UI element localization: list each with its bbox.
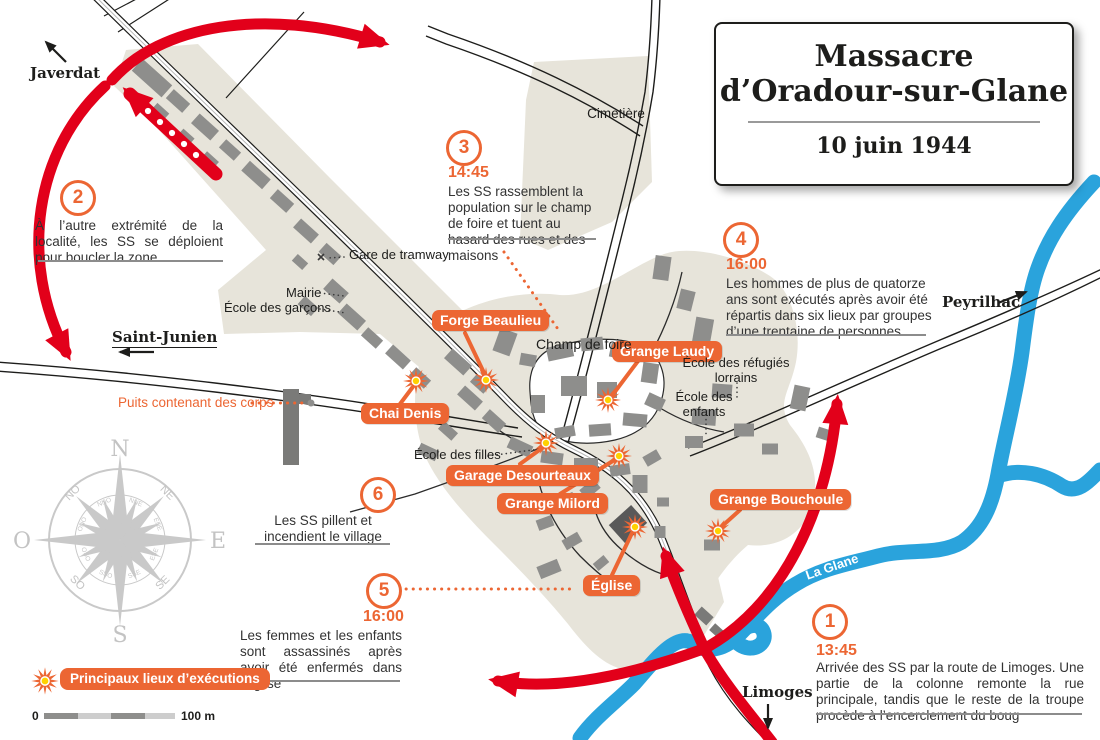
scale-bar xyxy=(44,713,175,719)
execution-burst-icon xyxy=(715,528,721,534)
building xyxy=(561,376,587,396)
label-saint-junien: Saint-Junien xyxy=(112,328,217,348)
compass-nne: NNE xyxy=(128,497,144,509)
compass-s: S xyxy=(112,623,127,648)
annotation-4-rule xyxy=(726,334,926,336)
compass-rose: N S E O NE NO SE SO NNE NNO ENE ONO ESE … xyxy=(13,437,226,648)
execution-burst-icon xyxy=(605,397,611,403)
annotation-6-text: Les SS pillent et incendient le village xyxy=(248,513,398,545)
site-eglise: Église xyxy=(583,575,640,596)
execution-burst-icon xyxy=(483,377,489,383)
annotation-1-number: 1 xyxy=(812,604,848,640)
building xyxy=(283,389,299,465)
building xyxy=(734,424,754,437)
annotation-3-rule xyxy=(448,238,596,240)
annotation-5-number: 5 xyxy=(366,573,402,609)
annotation-1-rule xyxy=(816,713,1082,715)
annotation-6-rule xyxy=(255,543,390,545)
annotation-2-number: 2 xyxy=(60,180,96,216)
label-ecole-des-enfants: École des enfants xyxy=(664,390,744,419)
annotation-4-number: 4 xyxy=(723,222,759,258)
annotation-6-number: 6 xyxy=(360,477,396,513)
compass-n: N xyxy=(110,437,129,462)
label-javerdat: Javerdat xyxy=(30,64,100,82)
building xyxy=(652,255,671,281)
building xyxy=(657,498,669,507)
label-cimetiere: Cimetière xyxy=(576,106,656,121)
annotation-3-time: 14:45 xyxy=(448,164,489,182)
site-garage-desourteaux: Garage Desourteaux xyxy=(446,465,599,486)
site-grange-milord: Grange Milord xyxy=(497,493,608,514)
execution-burst-icon xyxy=(616,453,622,459)
execution-burst-icon xyxy=(31,667,58,694)
scale-hundred: 100 m xyxy=(181,709,215,723)
river-tributary xyxy=(998,470,1100,489)
execution-burst-icon xyxy=(42,678,49,685)
label-champ-de-foire: Champ de foire xyxy=(536,337,632,353)
legend-burst-holder xyxy=(30,664,62,698)
compass-e: E xyxy=(210,529,226,554)
puits-dot xyxy=(308,400,315,407)
title-date: 10 juin 1944 xyxy=(716,133,1072,159)
building xyxy=(633,475,648,493)
building xyxy=(622,412,647,427)
label-ecole-refugies-lorrains: École des réfugiés lorrains xyxy=(680,356,792,385)
annotation-3-text: Les SS rassemblent la population sur le … xyxy=(448,184,600,264)
annotation-1-time: 13:45 xyxy=(816,642,857,660)
label-limoges: Limoges xyxy=(742,683,813,701)
legend-executions: Principaux lieux d’exécutions xyxy=(60,668,270,690)
label-peyrilhac: Peyrilhac xyxy=(942,293,1020,311)
building xyxy=(790,385,811,412)
scale-zero: 0 xyxy=(32,709,39,723)
title-box: Massacre d’Oradour-sur-Glane 10 juin 194… xyxy=(714,22,1074,186)
annotation-2-rule xyxy=(38,260,223,262)
building xyxy=(762,444,778,455)
site-grange-bouchoule: Grange Bouchoule xyxy=(710,489,851,510)
annotation-3-number: 3 xyxy=(446,130,482,166)
annotation-4-time: 16:00 xyxy=(726,256,767,274)
building xyxy=(589,423,612,437)
compass-o: O xyxy=(13,529,31,554)
compass-sse: SSE xyxy=(127,569,142,581)
building xyxy=(685,436,703,448)
title-line2: d’Oradour-sur-Glane xyxy=(716,75,1072,110)
compass-ese: ESE xyxy=(149,546,161,561)
label-puits: Puits contenant des corps xyxy=(118,395,273,410)
label-ecole-des-filles: École des filles xyxy=(414,448,501,463)
label-gare-de-tramway: Gare de tramway xyxy=(349,248,449,263)
compass-nno: NNO xyxy=(96,497,112,509)
execution-burst-icon xyxy=(632,524,638,530)
building xyxy=(641,362,660,384)
compass-ono: ONO xyxy=(77,516,89,532)
javerdat-arrow xyxy=(46,42,66,62)
label-mairie: Mairie xyxy=(286,286,321,301)
label-ecole-des-garcons: École des garçons xyxy=(224,301,331,316)
title-divider xyxy=(748,121,1040,123)
map-canvas: N S E O NE NO SE SO NNE NNO ENE ONO ESE … xyxy=(0,0,1100,740)
site-chai-denis: Chai Denis xyxy=(361,403,449,424)
compass-sso: SSO xyxy=(98,569,113,581)
annotation-5-time: 16:00 xyxy=(363,608,404,626)
building xyxy=(655,526,666,538)
execution-burst-icon xyxy=(413,378,419,384)
building xyxy=(531,395,545,413)
compass-oso: OSO xyxy=(79,546,91,562)
annotation-2-text: À l’autre extrémité de la localité, les … xyxy=(35,218,223,266)
execution-burst-icon xyxy=(543,440,549,446)
annotation-4-text: Les hommes de plus de quatorze ans sont … xyxy=(726,276,951,340)
title-line1: Massacre xyxy=(716,40,1072,75)
site-forge-beaulieu: Forge Beaulieu xyxy=(432,310,549,331)
